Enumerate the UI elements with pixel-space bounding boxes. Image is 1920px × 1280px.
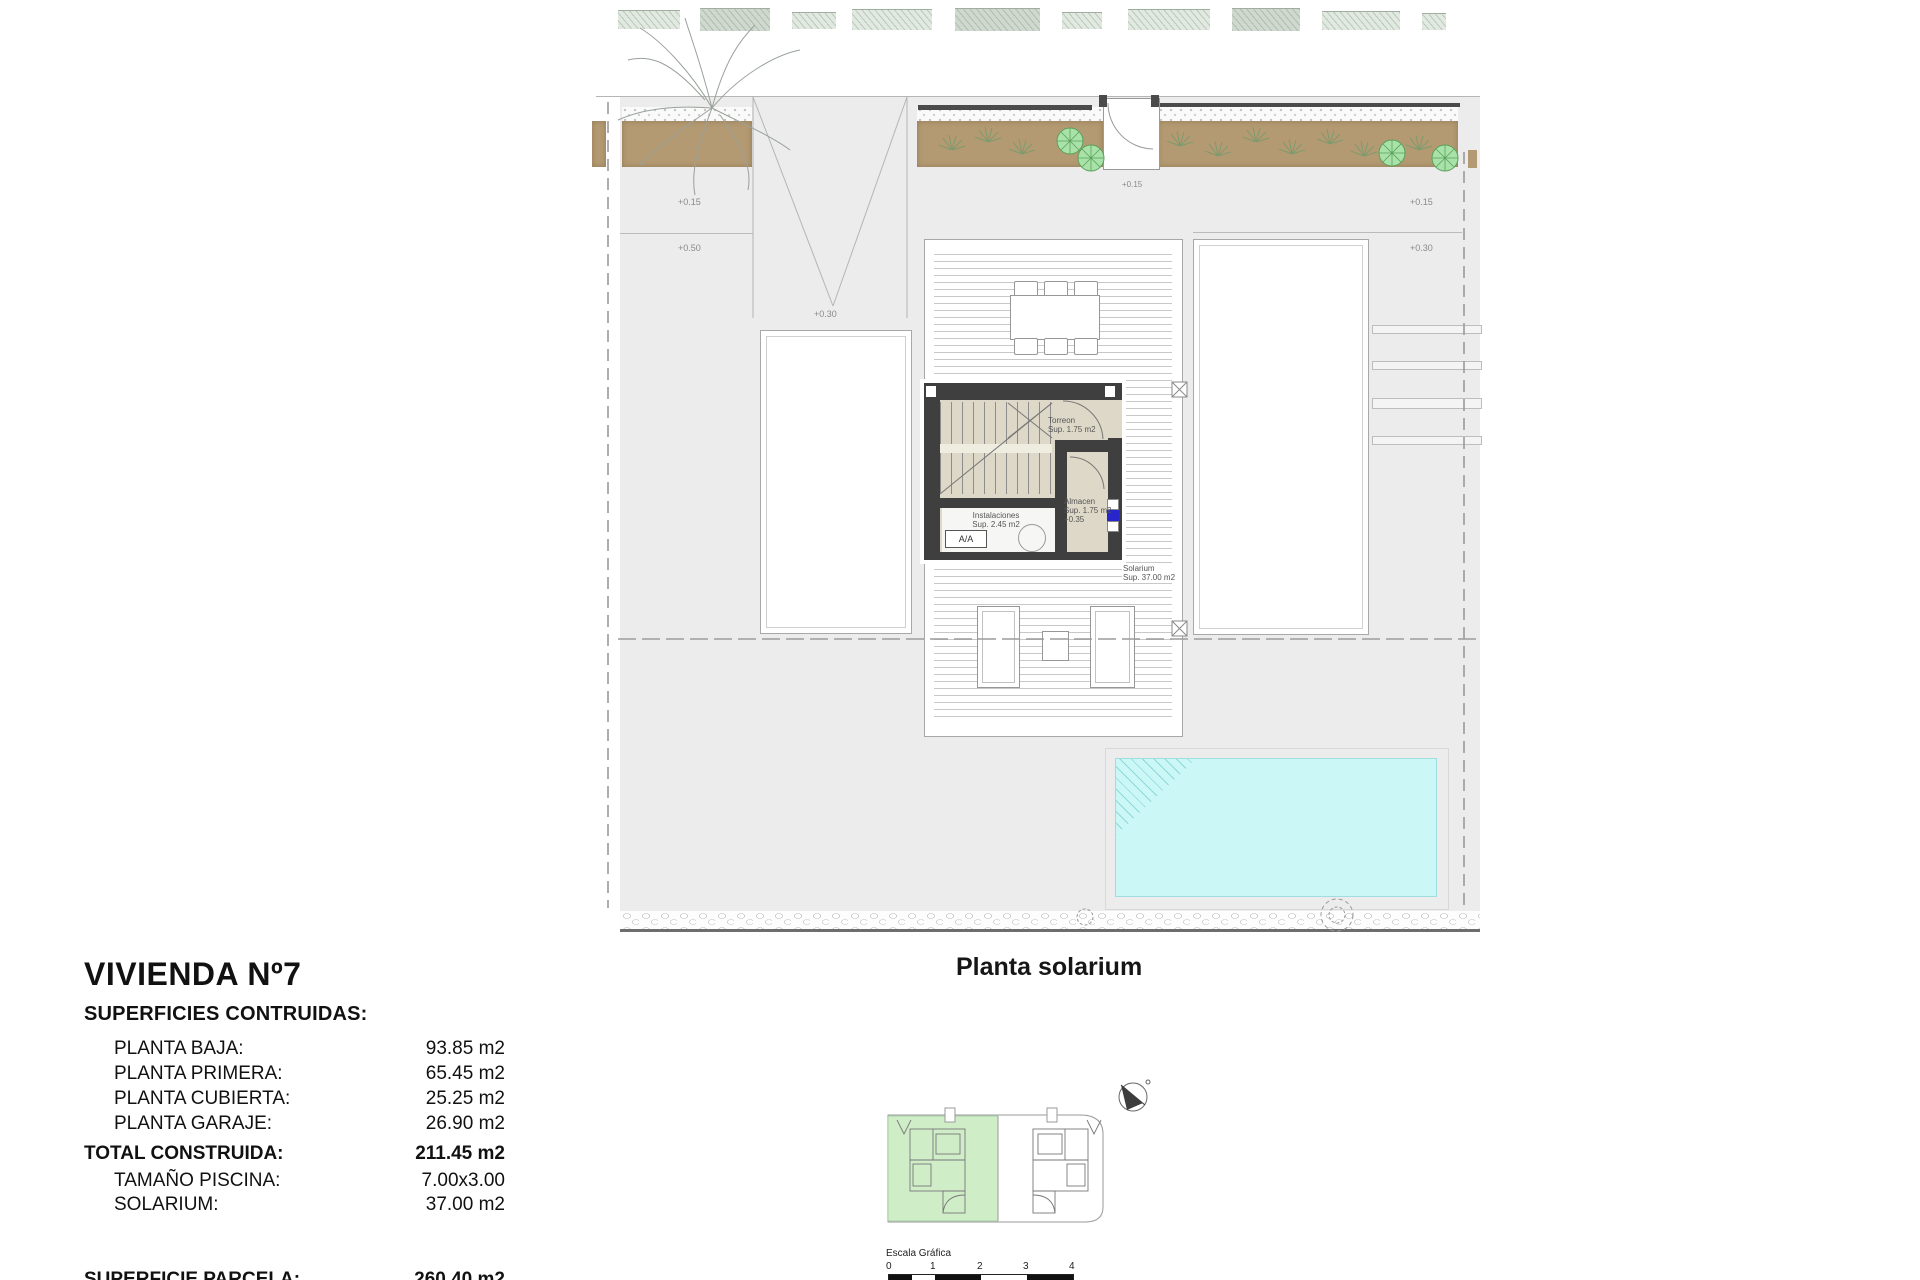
grass-icon	[939, 135, 965, 150]
column-marker	[1172, 382, 1187, 636]
solarium-area-value: 37.00 m2	[300, 1194, 505, 1216]
key-entry-tick	[1047, 1108, 1057, 1122]
scale-bar	[888, 1274, 1074, 1280]
grass-icon	[1279, 139, 1305, 154]
grass-icon	[975, 127, 1001, 142]
gate-swing-arc	[1108, 103, 1153, 149]
stair-detail	[940, 401, 1104, 494]
area-label: PLANTA CUBIERTA:	[114, 1088, 290, 1109]
area-value: 26.90 m2	[300, 1113, 505, 1135]
solarium-area-label: SOLARIUM:	[114, 1194, 219, 1215]
scale-tick: 3	[1023, 1261, 1029, 1272]
grass-icon	[1243, 127, 1269, 142]
north-arrow-icon	[1119, 1080, 1150, 1111]
total-label: TOTAL CONSTRUIDA:	[84, 1143, 284, 1164]
shrub-icon	[1078, 145, 1104, 171]
scale-tick: 0	[886, 1261, 892, 1272]
parcel-row: SUPERFICIE PARCELA: 260.40 m2	[84, 1269, 514, 1280]
shrub-icon	[1379, 140, 1405, 166]
area-row: PLANTA BAJA: 93.85 m2	[114, 1038, 514, 1060]
area-value: 25.25 m2	[300, 1088, 505, 1110]
plan-caption: Planta solarium	[956, 953, 1142, 982]
shrub-icon	[1057, 128, 1083, 154]
scale-tick: 1	[930, 1261, 936, 1272]
scale-tick: 2	[977, 1261, 983, 1272]
pool-size-label: TAMAÑO PISCINA:	[114, 1170, 280, 1191]
area-label: PLANTA GARAJE:	[114, 1113, 272, 1134]
scale-title: Escala Gráfica	[886, 1248, 951, 1259]
house-title: VIVIENDA Nº7	[84, 956, 301, 993]
tree-sketch	[1077, 899, 1353, 931]
area-label: PLANTA BAJA:	[114, 1038, 244, 1059]
total-value: 211.45 m2	[300, 1143, 505, 1165]
areas-subtitle: SUPERFICIES CONTRUIDAS:	[84, 1003, 368, 1026]
pool-size-value: 7.00x3.00	[300, 1170, 505, 1192]
key-entry-tick	[945, 1108, 955, 1122]
parcel-label: SUPERFICIE PARCELA:	[84, 1269, 300, 1280]
fern-plant	[618, 18, 800, 195]
area-label: PLANTA PRIMERA:	[114, 1063, 283, 1084]
grass-icon	[1317, 129, 1343, 144]
area-row: PLANTA GARAJE: 26.90 m2	[114, 1113, 514, 1135]
total-row: TOTAL CONSTRUIDA: 211.45 m2	[84, 1143, 514, 1165]
grass-icon	[1167, 131, 1193, 146]
area-row: PLANTA PRIMERA: 65.45 m2	[114, 1063, 514, 1085]
plan-sheet: A/A TorreonSup. 1.75 m2 AlmacenSup. 1.75…	[0, 0, 1920, 1280]
scale-tick: 4	[1069, 1261, 1075, 1272]
area-value: 93.85 m2	[300, 1038, 505, 1060]
area-row: PLANTA CUBIERTA: 25.25 m2	[114, 1088, 514, 1110]
grass-icon	[1406, 135, 1432, 150]
boundary-dashed	[608, 102, 1464, 908]
area-value: 65.45 m2	[300, 1063, 505, 1085]
solarium-row: SOLARIUM: 37.00 m2	[114, 1194, 514, 1216]
key-plan	[875, 1072, 1175, 1242]
parcel-value: 260.40 m2	[300, 1269, 505, 1280]
pool-size-row: TAMAÑO PISCINA: 7.00x3.00	[114, 1170, 514, 1192]
scale-ticks: 0 1 2 3 4	[886, 1261, 1086, 1273]
grass-icon	[1009, 139, 1035, 154]
shrub-icon	[1432, 145, 1458, 171]
grass-icon	[1205, 141, 1231, 156]
grass-icon	[1351, 141, 1377, 156]
garage-ramp	[753, 97, 907, 318]
